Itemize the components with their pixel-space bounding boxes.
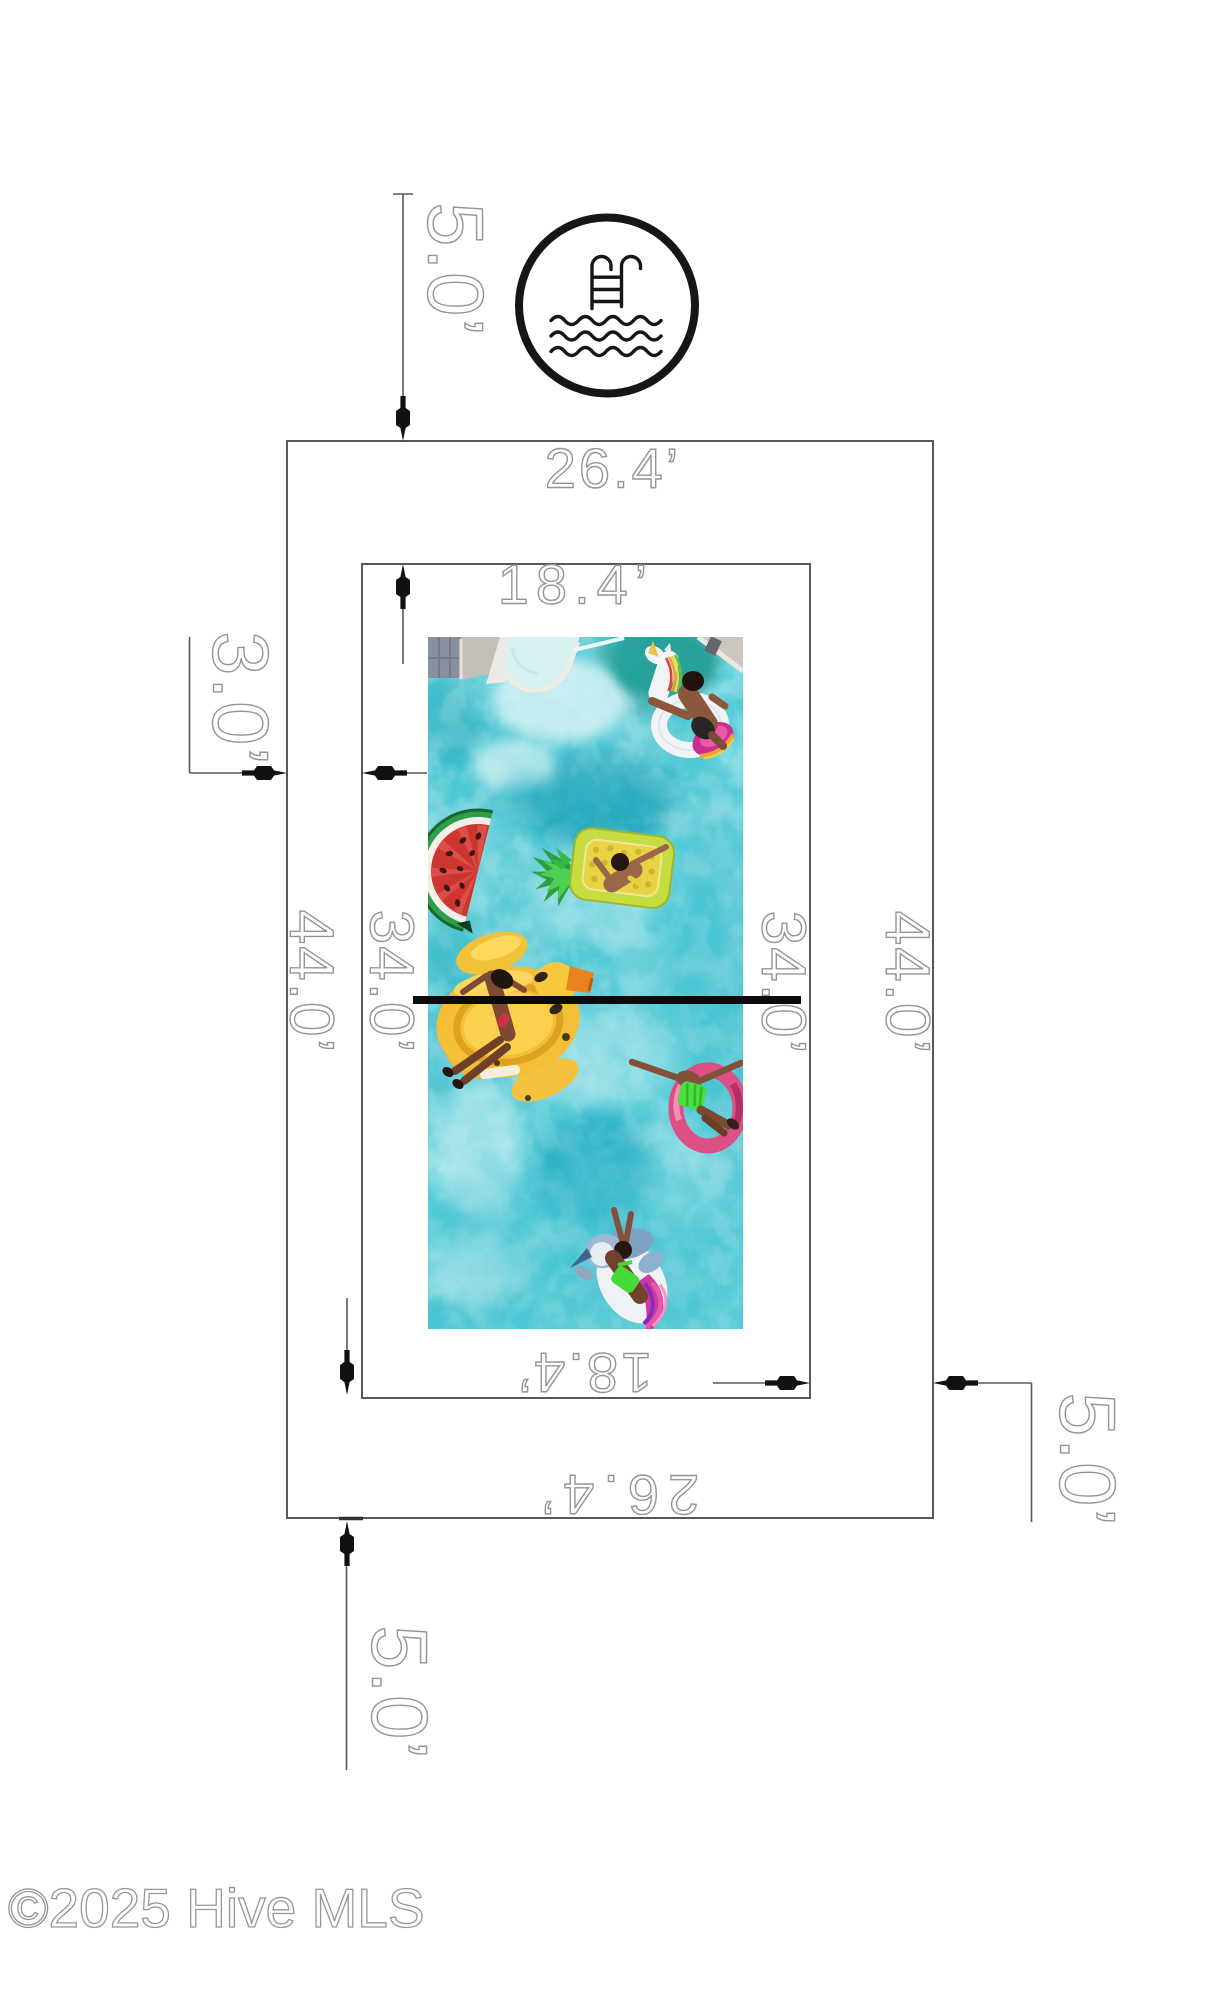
svg-text:5.0’: 5.0’ <box>356 1625 445 1760</box>
svg-text:©2025 Hive MLS: ©2025 Hive MLS <box>8 1877 425 1939</box>
svg-text:18.4’: 18.4’ <box>498 553 654 616</box>
svg-text:18.4’: 18.4’ <box>516 1342 652 1405</box>
svg-text:34.0’: 34.0’ <box>357 910 426 1054</box>
svg-text:26.4’: 26.4’ <box>533 1464 699 1527</box>
svg-text:5.0’: 5.0’ <box>1044 1392 1133 1527</box>
svg-text:3.0’: 3.0’ <box>197 631 286 766</box>
svg-text:44.0’: 44.0’ <box>873 911 942 1055</box>
svg-text:5.0’: 5.0’ <box>412 202 501 337</box>
svg-text:34.0’: 34.0’ <box>749 911 818 1055</box>
svg-text:26.4’: 26.4’ <box>545 437 681 500</box>
svg-text:44.0’: 44.0’ <box>277 910 346 1054</box>
